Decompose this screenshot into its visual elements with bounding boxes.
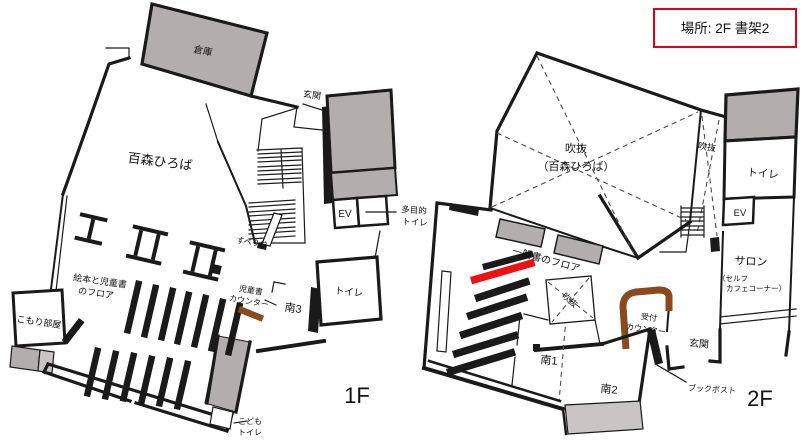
reception-counter-label-1: 受付 xyxy=(640,311,657,323)
minami1-label: 南1 xyxy=(540,353,558,367)
wall-corner xyxy=(272,282,285,292)
floor1-label: 1F xyxy=(344,383,370,408)
staircase-1f xyxy=(218,142,305,250)
terrace-strip xyxy=(565,401,643,434)
minami2-label: 南2 xyxy=(600,382,618,396)
wall xyxy=(375,231,380,258)
reading-table xyxy=(183,240,226,281)
floor-plan-drawing: 倉庫 こもり部屋 こども トイレ 南3 トイレ xyxy=(0,0,802,446)
minami3-label: 南3 xyxy=(284,301,303,316)
general-books-shelves xyxy=(446,251,536,377)
childrens-floor-label-2: のフロア xyxy=(77,286,114,301)
gray-annex xyxy=(10,346,40,371)
floor2-plan: 吹抜 （百森ひろば） 吹抜 トイレ EV サロン （セルフ カフェコーナー） 玄… xyxy=(424,53,798,434)
book-post-label: ブックポスト xyxy=(688,382,737,395)
left-block-south-wall xyxy=(424,368,563,409)
salon-label: サロン xyxy=(734,254,768,269)
reading-table xyxy=(126,224,169,265)
slide-label: すべり台 xyxy=(236,235,269,249)
minami1-dashed-boundary xyxy=(559,318,566,402)
floor2-label: 2F xyxy=(747,386,773,411)
salon-walls-lower xyxy=(710,330,789,362)
pillar xyxy=(533,344,540,351)
childrens-counter-label-2: カウンター xyxy=(228,294,269,310)
gray-box xyxy=(496,219,545,247)
gray-block-upper xyxy=(327,90,395,173)
entrance-wall xyxy=(667,347,683,369)
wall-bench xyxy=(437,271,451,352)
gray-block-2f xyxy=(725,89,798,141)
salon-counter-lines xyxy=(720,309,796,324)
multipurpose-toilet-label-2: トイレ xyxy=(402,216,428,228)
floor-plan-page: 倉庫 こもり部屋 こども トイレ 南3 トイレ xyxy=(0,0,802,446)
entrance-2f-label: 玄関 xyxy=(688,336,709,351)
multipurpose-toilet-room xyxy=(357,196,388,226)
wall xyxy=(595,320,600,344)
atrium-right-label: 吹抜 xyxy=(697,140,716,153)
entrance-1f-label: 玄関 xyxy=(302,88,321,101)
wall xyxy=(251,96,297,107)
south-wall xyxy=(44,364,233,431)
hiroba-label: 百森ひろば xyxy=(127,150,193,173)
wall xyxy=(106,48,129,58)
kids-toilet-label-1: こども xyxy=(238,417,262,426)
salon-sub-label-1: （セルフ xyxy=(718,274,748,283)
salon-sub-label-2: カフェコーナー） xyxy=(726,284,786,293)
minami3-wall xyxy=(258,341,324,351)
outer-wall xyxy=(63,58,129,194)
kids-toilet-label-2: トイレ xyxy=(238,428,262,437)
atrium-label-2: （百森ひろば） xyxy=(538,159,615,173)
minami2-wall xyxy=(536,344,602,350)
floor1-plan: 倉庫 こもり部屋 こども トイレ 南3 トイレ xyxy=(10,4,428,437)
multipurpose-toilet-label-1: 多目的 xyxy=(401,204,427,216)
elevator-2f-label: EV xyxy=(734,208,747,219)
elevator-1f-label: EV xyxy=(338,209,352,220)
childrens-counter xyxy=(238,306,265,322)
atrium-label-1: 吹抜 xyxy=(565,141,587,155)
location-legend: 場所: 2F 書架2 xyxy=(654,9,796,47)
pillar xyxy=(710,237,720,252)
reading-table xyxy=(74,212,108,246)
legend-text: 場所: 2F 書架2 xyxy=(681,21,770,36)
